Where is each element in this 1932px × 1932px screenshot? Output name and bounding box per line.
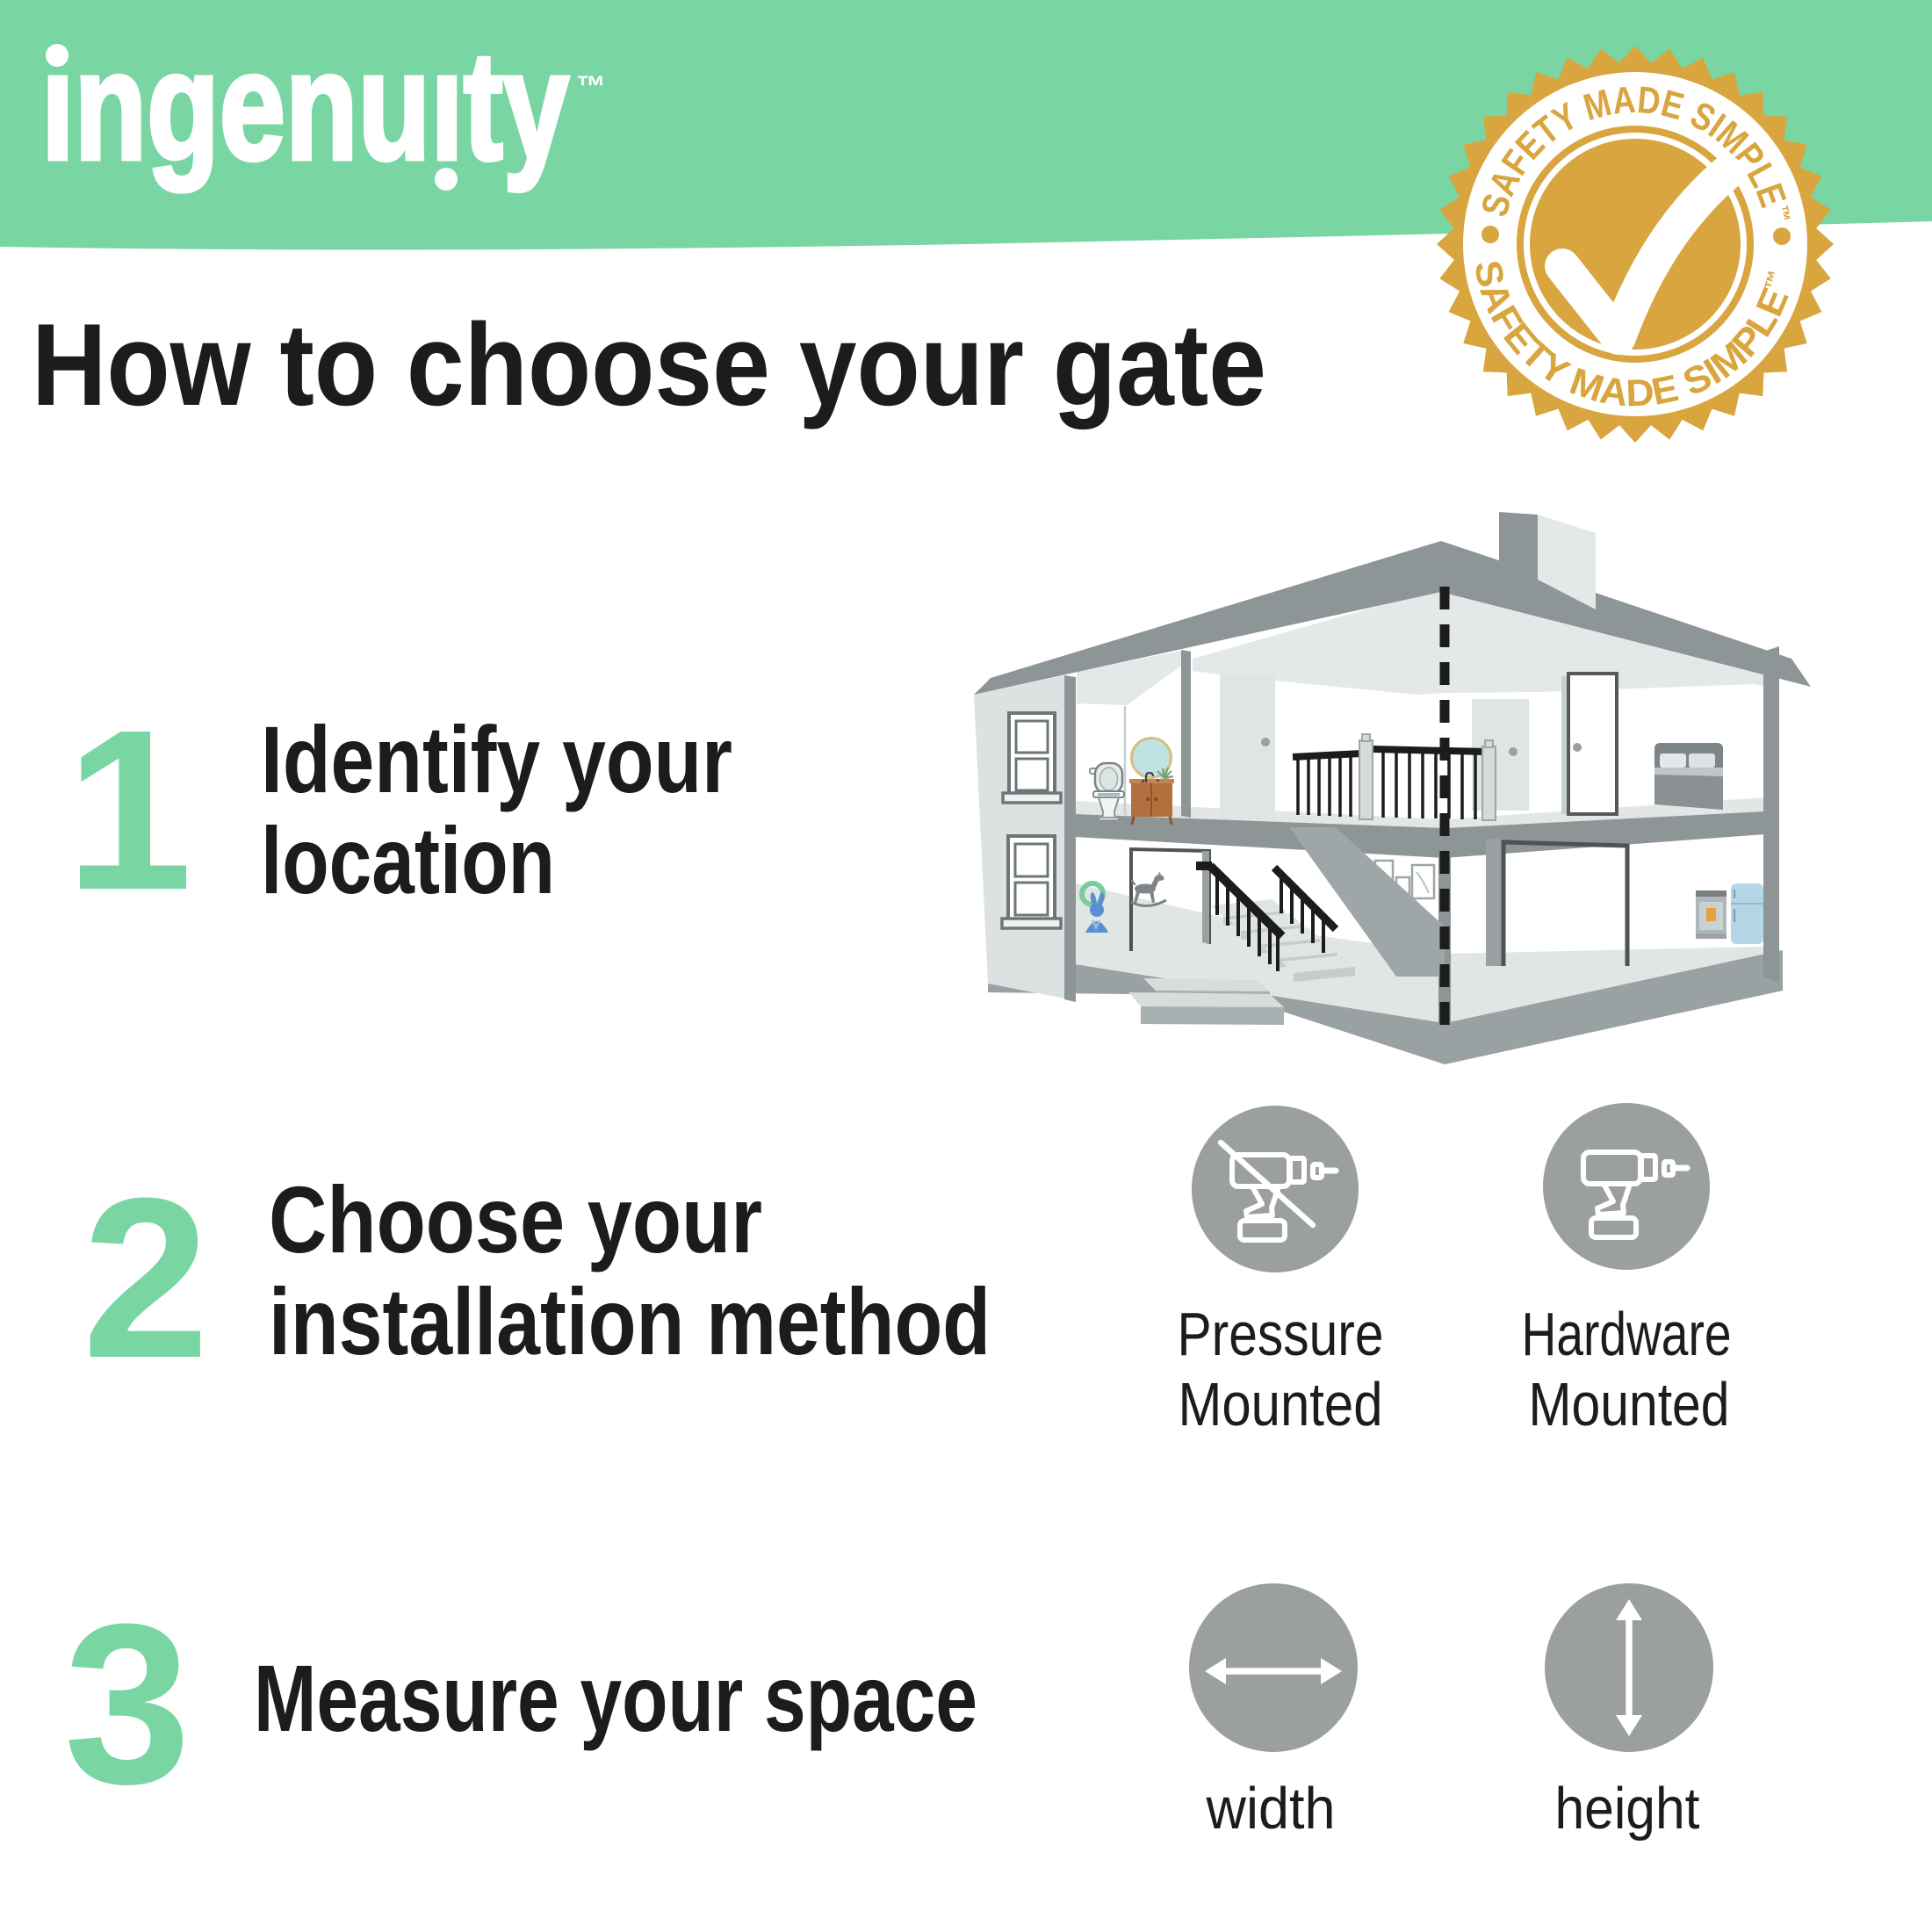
svg-text:Pressure: Pressure xyxy=(1178,1300,1384,1368)
svg-text:Choose your: Choose your xyxy=(269,1166,762,1272)
svg-text:Mounted: Mounted xyxy=(1179,1370,1383,1438)
svg-text:Identify your: Identify your xyxy=(261,706,732,812)
svg-text:3: 3 xyxy=(64,1577,191,1832)
svg-text:Measure your space: Measure your space xyxy=(254,1645,977,1751)
svg-text:Mounted: Mounted xyxy=(1529,1370,1730,1438)
svg-text:2: 2 xyxy=(83,1151,210,1406)
svg-text:ıngenuıty: ıngenuıty xyxy=(41,20,569,192)
svg-text:width: width xyxy=(1206,1776,1336,1842)
svg-text:Hardware: Hardware xyxy=(1522,1300,1732,1368)
svg-text:1: 1 xyxy=(66,683,193,938)
svg-text:™: ™ xyxy=(576,70,606,104)
svg-text:height: height xyxy=(1555,1776,1700,1842)
svg-text:installation method: installation method xyxy=(269,1268,991,1374)
svg-text:location: location xyxy=(261,807,555,913)
svg-text:How to choose your gate: How to choose your gate xyxy=(32,300,1266,430)
